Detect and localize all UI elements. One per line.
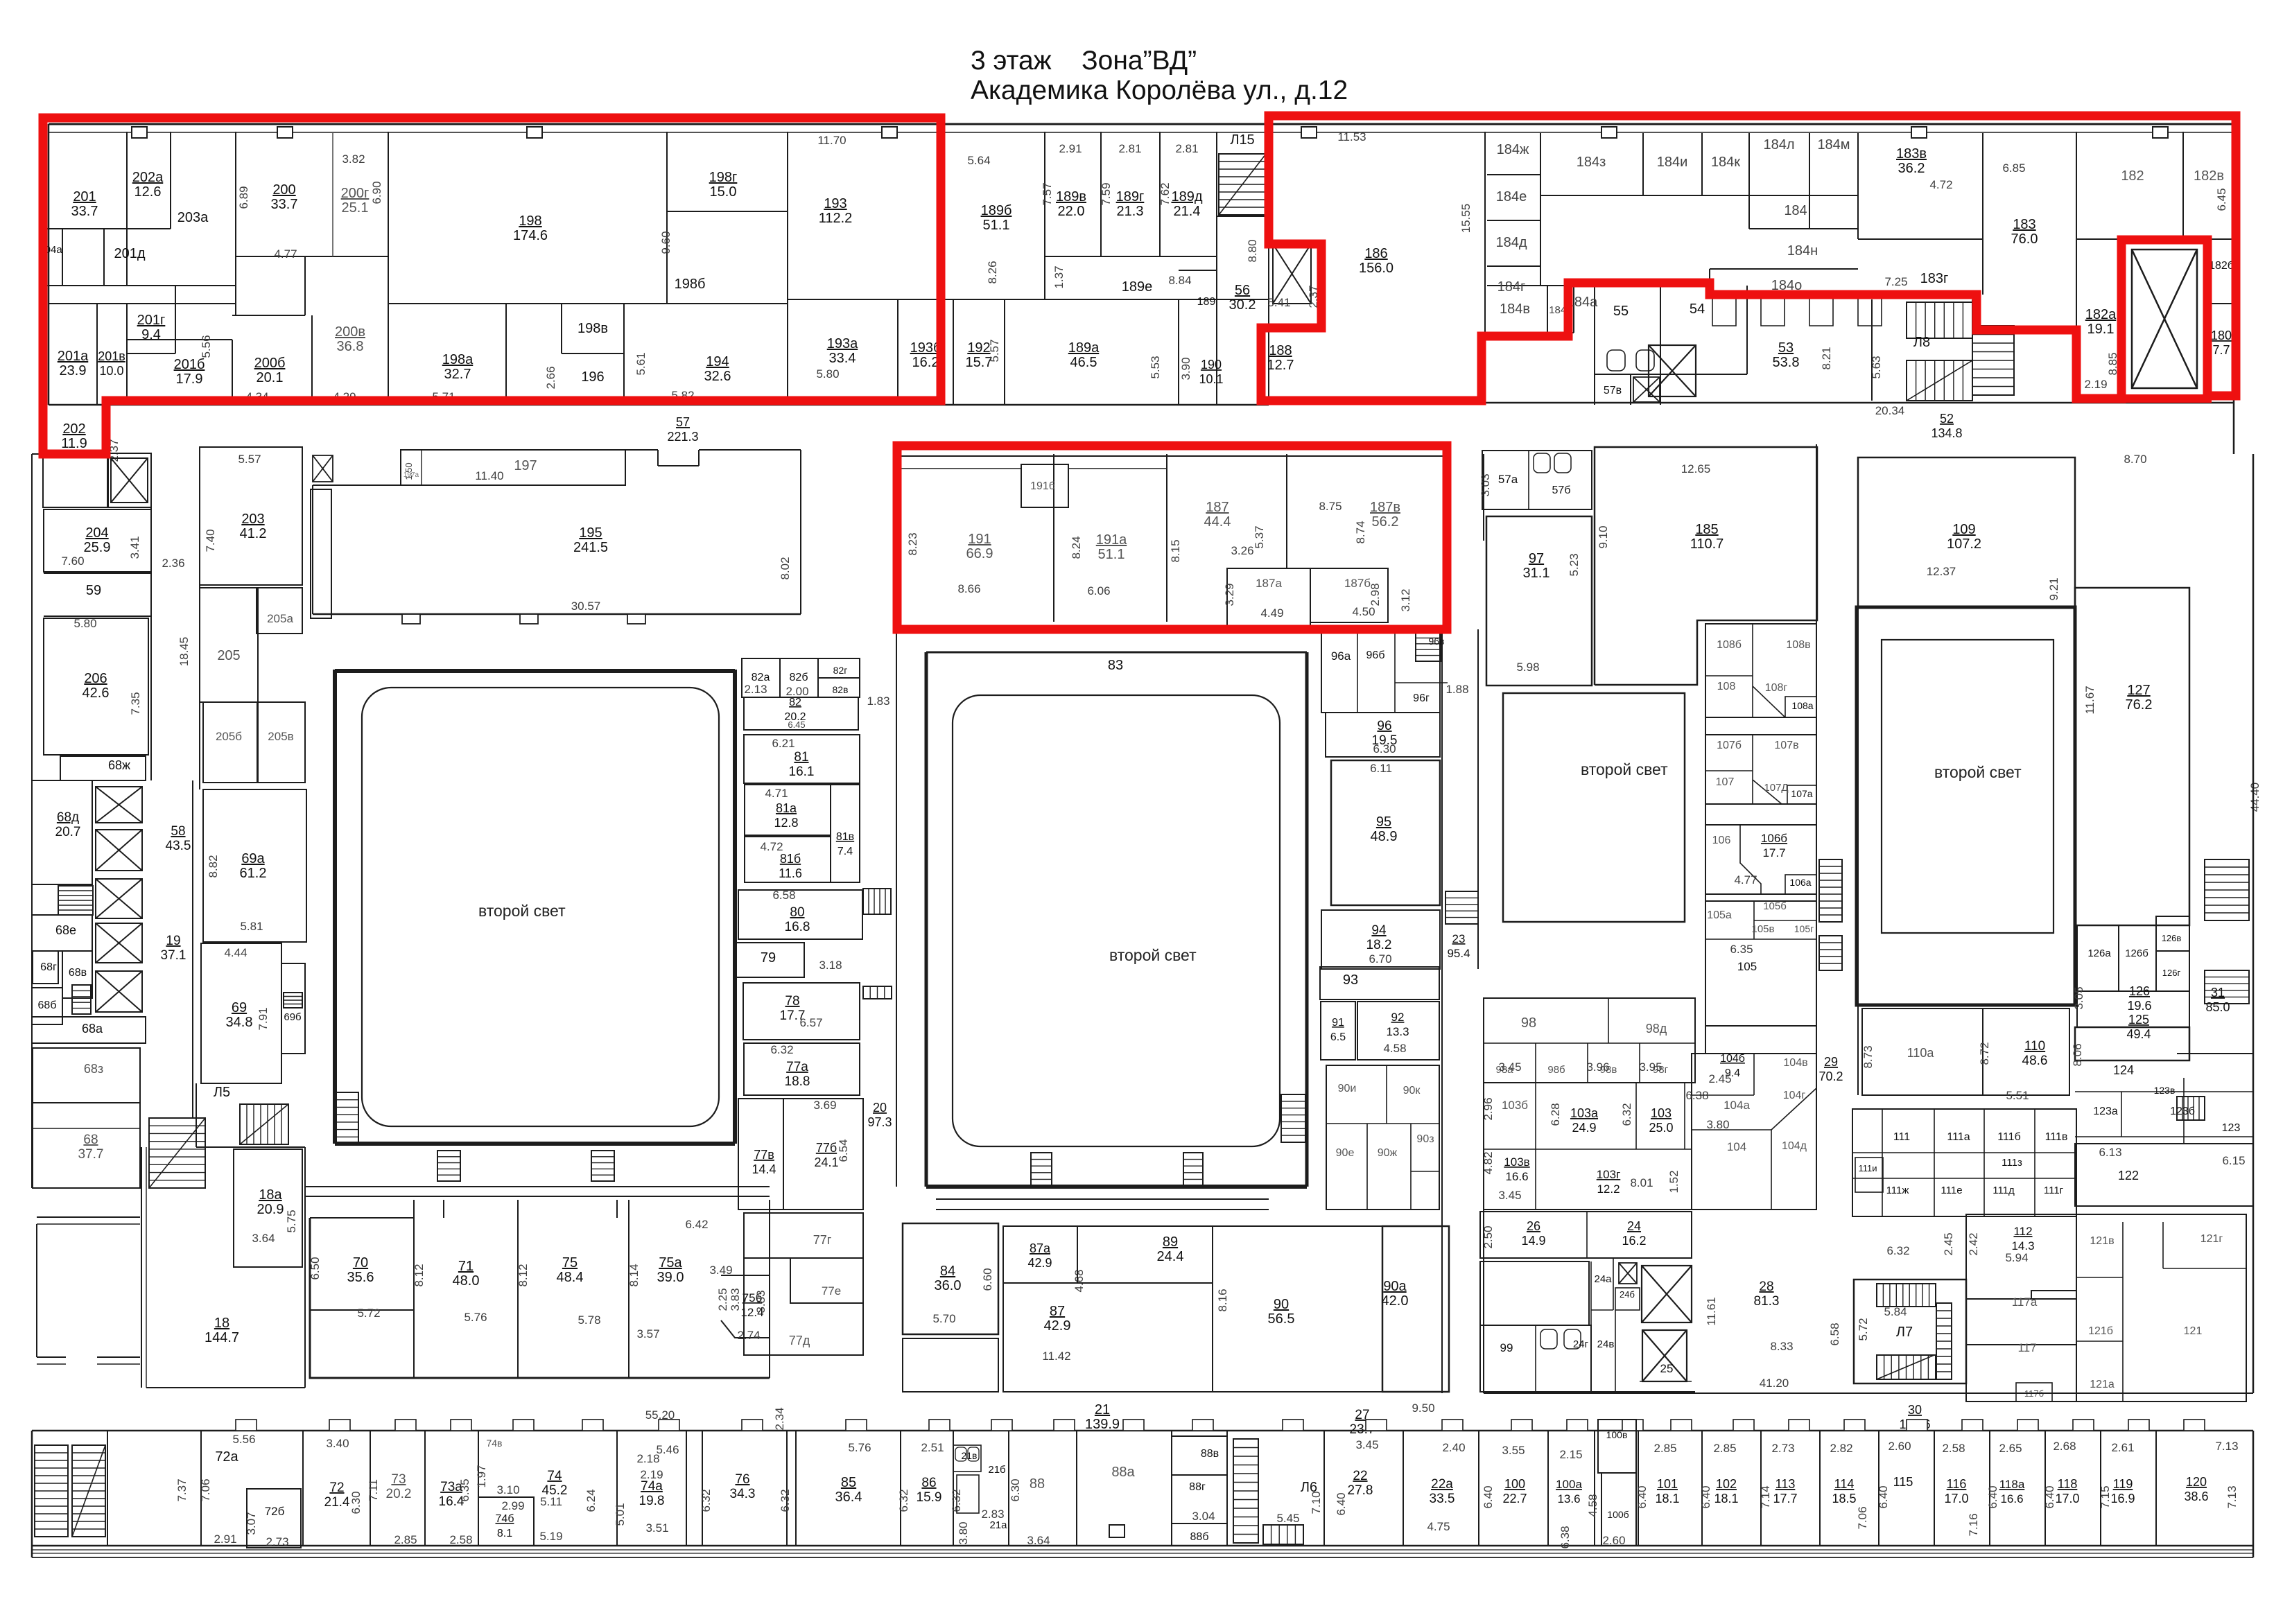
svg-text:6.50: 6.50 <box>309 1257 322 1280</box>
svg-text:182: 182 <box>2121 168 2144 184</box>
svg-text:Л15: Л15 <box>1230 132 1254 148</box>
svg-text:107: 107 <box>1716 776 1735 788</box>
svg-text:6.40: 6.40 <box>1482 1485 1495 1508</box>
svg-text:241.5: 241.5 <box>573 540 608 555</box>
svg-text:20.9: 20.9 <box>257 1202 284 1217</box>
svg-text:22.0: 22.0 <box>1058 204 1085 219</box>
svg-text:7.91: 7.91 <box>257 1007 270 1030</box>
svg-text:96а: 96а <box>1331 649 1351 663</box>
svg-text:100в: 100в <box>1606 1429 1628 1440</box>
svg-text:74в: 74в <box>486 1438 502 1449</box>
svg-text:25.0: 25.0 <box>1649 1121 1673 1135</box>
svg-text:84: 84 <box>940 1264 955 1279</box>
svg-text:2.68: 2.68 <box>2053 1440 2076 1453</box>
svg-text:117а: 117а <box>2012 1295 2038 1309</box>
svg-text:30: 30 <box>1908 1403 1922 1417</box>
svg-text:184: 184 <box>1784 203 1807 218</box>
svg-text:111г: 111г <box>2044 1185 2064 1196</box>
svg-text:17.9: 17.9 <box>176 372 203 387</box>
svg-text:4.49: 4.49 <box>1260 606 1283 620</box>
svg-text:3.07: 3.07 <box>245 1512 258 1535</box>
svg-text:2.81: 2.81 <box>1175 142 1198 155</box>
svg-text:2.61: 2.61 <box>2111 1441 2134 1454</box>
svg-text:6.40: 6.40 <box>2043 1485 2056 1508</box>
svg-text:18: 18 <box>214 1316 229 1331</box>
svg-text:6.90: 6.90 <box>370 181 383 204</box>
svg-text:44.40: 44.40 <box>2248 783 2261 812</box>
svg-text:121: 121 <box>2184 1325 2203 1337</box>
svg-text:80: 80 <box>790 905 804 920</box>
svg-text:119: 119 <box>2113 1477 2133 1491</box>
svg-text:2.85: 2.85 <box>394 1533 417 1546</box>
svg-text:5.98: 5.98 <box>1516 661 1539 674</box>
svg-text:183: 183 <box>2013 217 2035 232</box>
svg-text:77а: 77а <box>786 1060 808 1074</box>
svg-text:28: 28 <box>1759 1280 1773 1294</box>
svg-text:2.42: 2.42 <box>1967 1232 1980 1255</box>
svg-text:39.0: 39.0 <box>657 1270 684 1285</box>
svg-text:81а: 81а <box>776 801 797 815</box>
svg-text:52: 52 <box>1940 412 1954 426</box>
svg-text:202а: 202а <box>132 170 164 185</box>
svg-text:106а: 106а <box>1789 877 1811 888</box>
svg-text:5.84: 5.84 <box>1884 1305 1907 1318</box>
svg-text:24: 24 <box>1627 1219 1641 1233</box>
svg-text:26: 26 <box>1527 1219 1540 1233</box>
svg-text:3.45: 3.45 <box>1498 1189 1521 1202</box>
svg-text:205б: 205б <box>216 730 242 743</box>
svg-text:75а: 75а <box>659 1255 682 1271</box>
svg-text:5.61: 5.61 <box>634 352 648 375</box>
svg-text:97: 97 <box>1529 551 1544 566</box>
svg-text:112: 112 <box>2013 1225 2032 1238</box>
svg-text:127: 127 <box>2127 683 2150 698</box>
svg-text:3.69: 3.69 <box>813 1099 836 1112</box>
svg-text:54: 54 <box>1690 302 1705 317</box>
svg-text:198: 198 <box>519 213 541 229</box>
svg-text:13.6: 13.6 <box>1557 1492 1580 1505</box>
svg-text:33.5: 33.5 <box>1430 1492 1455 1506</box>
svg-text:2.98: 2.98 <box>1369 583 1382 606</box>
svg-text:48.9: 48.9 <box>1371 829 1398 844</box>
svg-text:3.12: 3.12 <box>1399 588 1412 611</box>
svg-text:74а: 74а <box>641 1479 663 1494</box>
svg-text:42.6: 42.6 <box>83 686 110 701</box>
svg-text:33.7: 33.7 <box>71 204 98 219</box>
svg-text:201в: 201в <box>98 349 125 363</box>
svg-text:121в: 121в <box>2090 1235 2114 1247</box>
svg-text:6.45: 6.45 <box>2215 188 2228 211</box>
svg-text:12.8: 12.8 <box>774 816 798 830</box>
svg-text:90и: 90и <box>1338 1083 1357 1094</box>
svg-text:111д: 111д <box>1993 1185 2015 1196</box>
svg-text:14.9: 14.9 <box>1521 1234 1545 1248</box>
svg-text:5.41: 5.41 <box>1267 296 1290 309</box>
svg-text:115: 115 <box>1893 1475 1913 1489</box>
svg-text:98б: 98б <box>1547 1064 1565 1076</box>
svg-text:198б: 198б <box>675 277 706 292</box>
svg-text:77б: 77б <box>816 1141 837 1155</box>
svg-text:6.45: 6.45 <box>788 719 805 730</box>
svg-text:42.9: 42.9 <box>1027 1256 1052 1270</box>
svg-text:104: 104 <box>1727 1140 1746 1153</box>
svg-text:91: 91 <box>1332 1017 1344 1029</box>
svg-text:57в: 57в <box>1604 385 1622 396</box>
svg-text:99: 99 <box>1500 1341 1513 1354</box>
svg-text:83: 83 <box>1108 658 1123 673</box>
svg-text:11.42: 11.42 <box>1042 1350 1070 1363</box>
svg-text:17.7: 17.7 <box>1762 846 1785 859</box>
svg-text:24в: 24в <box>1597 1338 1615 1350</box>
svg-text:24.9: 24.9 <box>1572 1121 1596 1135</box>
svg-text:201д: 201д <box>114 246 145 261</box>
svg-text:180: 180 <box>2211 329 2232 342</box>
svg-text:187а: 187а <box>1256 577 1282 590</box>
svg-text:77е: 77е <box>822 1284 841 1298</box>
svg-text:11.61: 11.61 <box>1705 1297 1718 1325</box>
svg-text:6.58: 6.58 <box>1828 1322 1841 1345</box>
svg-text:189а: 189а <box>1068 340 1100 356</box>
svg-text:11.67: 11.67 <box>2083 686 2096 714</box>
svg-text:193: 193 <box>824 196 847 211</box>
svg-text:73: 73 <box>391 1472 406 1487</box>
svg-text:3.96: 3.96 <box>1586 1060 1609 1074</box>
svg-text:8.14: 8.14 <box>627 1264 641 1286</box>
svg-text:70.2: 70.2 <box>1818 1069 1843 1083</box>
svg-text:6.21: 6.21 <box>772 737 795 750</box>
svg-text:201а: 201а <box>58 349 89 364</box>
svg-text:2.36: 2.36 <box>162 557 184 570</box>
svg-text:5.76: 5.76 <box>464 1311 487 1324</box>
svg-text:5.51: 5.51 <box>2006 1089 2029 1102</box>
svg-text:68: 68 <box>83 1133 98 1147</box>
svg-text:18.8: 18.8 <box>785 1074 810 1089</box>
svg-text:184г: 184г <box>1497 279 1526 295</box>
svg-text:75: 75 <box>562 1255 578 1271</box>
svg-text:5.72: 5.72 <box>1857 1318 1870 1341</box>
svg-text:20.2: 20.2 <box>386 1487 412 1501</box>
svg-text:7.06: 7.06 <box>1856 1506 1869 1529</box>
svg-text:90к: 90к <box>1403 1085 1421 1097</box>
svg-text:8.33: 8.33 <box>1770 1340 1793 1353</box>
svg-text:4.75: 4.75 <box>1427 1520 1450 1533</box>
svg-text:12.2: 12.2 <box>1597 1182 1620 1196</box>
svg-text:5.23: 5.23 <box>1568 553 1581 576</box>
svg-text:2.58: 2.58 <box>449 1533 472 1546</box>
svg-text:2.82: 2.82 <box>1830 1442 1852 1455</box>
svg-text:30.2: 30.2 <box>1229 297 1256 313</box>
svg-text:189е: 189е <box>1122 279 1153 295</box>
svg-text:88а: 88а <box>1111 1465 1135 1480</box>
svg-text:59: 59 <box>86 583 101 598</box>
svg-text:42.9: 42.9 <box>1044 1318 1071 1334</box>
svg-text:4.77: 4.77 <box>274 247 297 261</box>
svg-text:18.1: 18.1 <box>1655 1492 1679 1505</box>
svg-text:6.35: 6.35 <box>458 1478 471 1501</box>
svg-text:7.37: 7.37 <box>175 1478 189 1501</box>
svg-text:90а: 90а <box>1383 1279 1407 1294</box>
svg-text:6.11: 6.11 <box>1370 762 1392 775</box>
svg-text:7.40: 7.40 <box>204 529 217 552</box>
svg-text:202: 202 <box>62 421 85 437</box>
svg-text:116: 116 <box>1947 1477 1967 1491</box>
svg-text:57б: 57б <box>1552 484 1571 496</box>
svg-text:201: 201 <box>73 189 96 204</box>
svg-text:3.57: 3.57 <box>636 1327 659 1341</box>
svg-text:8.01: 8.01 <box>1630 1176 1653 1189</box>
svg-text:66.9: 66.9 <box>966 546 993 561</box>
svg-text:9.60: 9.60 <box>659 231 672 254</box>
svg-text:112.2: 112.2 <box>819 211 853 226</box>
svg-text:18.45: 18.45 <box>177 637 191 667</box>
svg-text:184д: 184д <box>1495 235 1527 250</box>
svg-text:11.6: 11.6 <box>779 866 802 880</box>
svg-text:2.91: 2.91 <box>1059 142 1082 155</box>
svg-text:72: 72 <box>329 1481 344 1495</box>
svg-text:88в: 88в <box>1201 1448 1219 1460</box>
svg-text:56.5: 56.5 <box>1268 1311 1295 1327</box>
svg-text:21: 21 <box>1095 1402 1110 1417</box>
svg-text:6.42: 6.42 <box>685 1218 708 1231</box>
svg-text:8.24: 8.24 <box>1070 536 1083 559</box>
svg-text:68е: 68е <box>55 923 76 937</box>
svg-text:126б: 126б <box>2125 948 2148 959</box>
svg-text:203а: 203а <box>177 210 209 225</box>
svg-text:92: 92 <box>1391 1011 1405 1024</box>
svg-text:87а: 87а <box>1030 1241 1051 1255</box>
svg-text:30.57: 30.57 <box>571 600 601 613</box>
svg-text:12.7: 12.7 <box>1267 358 1294 373</box>
svg-text:134.8: 134.8 <box>1931 426 1962 440</box>
svg-text:126: 126 <box>2129 984 2150 998</box>
svg-text:7.35: 7.35 <box>129 692 142 715</box>
svg-text:6.32: 6.32 <box>700 1489 713 1512</box>
svg-text:106: 106 <box>1712 835 1731 846</box>
svg-text:2.58: 2.58 <box>1942 1442 1965 1455</box>
svg-text:7.16: 7.16 <box>1967 1513 1980 1536</box>
svg-text:25.9: 25.9 <box>84 540 111 555</box>
svg-text:2.73: 2.73 <box>1771 1442 1794 1455</box>
svg-text:94: 94 <box>1371 923 1387 938</box>
svg-text:5.70: 5.70 <box>932 1312 955 1325</box>
svg-text:87: 87 <box>1050 1304 1065 1319</box>
svg-text:1.52: 1.52 <box>1667 1170 1681 1193</box>
svg-text:7.13: 7.13 <box>2225 1485 2239 1508</box>
svg-text:3.04: 3.04 <box>1192 1510 1215 1523</box>
svg-text:23.9: 23.9 <box>60 363 87 378</box>
svg-text:12.37: 12.37 <box>1927 565 1956 578</box>
svg-text:8.15: 8.15 <box>1169 539 1182 562</box>
svg-text:69б: 69б <box>284 1011 301 1023</box>
svg-text:Л8: Л8 <box>1913 335 1930 350</box>
svg-text:5.53: 5.53 <box>1149 356 1162 378</box>
svg-text:187в: 187в <box>1370 500 1400 515</box>
svg-text:6.57: 6.57 <box>799 1016 822 1029</box>
svg-text:98: 98 <box>1521 1015 1536 1031</box>
svg-text:77г: 77г <box>813 1233 832 1247</box>
svg-text:121г: 121г <box>2200 1233 2223 1245</box>
svg-text:103г: 103г <box>1597 1168 1621 1181</box>
svg-text:96г: 96г <box>1413 692 1430 704</box>
svg-text:6.60: 6.60 <box>981 1268 994 1291</box>
svg-text:95.4: 95.4 <box>1447 947 1470 960</box>
svg-text:117: 117 <box>2017 1341 2036 1354</box>
svg-text:183в: 183в <box>1896 146 1927 161</box>
svg-text:7.60: 7.60 <box>61 555 84 568</box>
svg-text:189д: 189д <box>1171 189 1202 204</box>
svg-text:68в: 68в <box>69 967 87 979</box>
svg-text:2.15: 2.15 <box>1559 1448 1582 1461</box>
svg-text:27.8: 27.8 <box>1348 1483 1373 1498</box>
svg-text:107Д: 107Д <box>1764 782 1788 794</box>
svg-text:182б: 182б <box>2209 260 2234 272</box>
svg-text:57а: 57а <box>1498 473 1518 486</box>
svg-text:4.50: 4.50 <box>1352 605 1375 618</box>
svg-text:16.9: 16.9 <box>2110 1492 2135 1505</box>
svg-text:123в: 123в <box>2154 1085 2176 1096</box>
svg-text:104в: 104в <box>1783 1057 1807 1069</box>
svg-text:3.80: 3.80 <box>957 1521 970 1544</box>
svg-text:2.60: 2.60 <box>1602 1534 1625 1547</box>
svg-text:8.21: 8.21 <box>1820 347 1833 369</box>
svg-text:3.64: 3.64 <box>252 1232 275 1245</box>
svg-text:72б: 72б <box>265 1505 285 1518</box>
svg-text:124: 124 <box>2113 1063 2134 1077</box>
svg-text:24б: 24б <box>1620 1289 1635 1300</box>
svg-text:7.14: 7.14 <box>1759 1485 1772 1508</box>
svg-text:18.1: 18.1 <box>1714 1492 1738 1505</box>
svg-text:1.88: 1.88 <box>1445 683 1468 696</box>
svg-text:5.11: 5.11 <box>540 1495 562 1508</box>
svg-text:20.34: 20.34 <box>1875 404 1905 417</box>
svg-text:18.2: 18.2 <box>1366 938 1392 952</box>
svg-text:11.9: 11.9 <box>61 436 87 451</box>
svg-text:6.38: 6.38 <box>1685 1089 1708 1102</box>
svg-text:198в: 198в <box>578 321 608 336</box>
svg-text:36.0: 36.0 <box>935 1278 962 1293</box>
svg-text:7.59: 7.59 <box>1100 182 1113 205</box>
svg-text:5.57: 5.57 <box>988 339 1001 362</box>
svg-text:48.4: 48.4 <box>557 1270 584 1285</box>
svg-text:6.30: 6.30 <box>1009 1478 1022 1501</box>
svg-text:95: 95 <box>1376 814 1391 830</box>
svg-text:6.32: 6.32 <box>1886 1244 1909 1257</box>
svg-text:21.4: 21.4 <box>1174 204 1201 219</box>
svg-text:20: 20 <box>873 1101 887 1115</box>
svg-text:205а: 205а <box>267 612 293 625</box>
svg-text:7.7: 7.7 <box>2212 343 2230 357</box>
svg-text:4.71: 4.71 <box>765 787 788 800</box>
svg-text:48.0: 48.0 <box>453 1273 480 1289</box>
svg-text:139.9: 139.9 <box>1085 1417 1120 1432</box>
svg-text:187: 187 <box>1206 500 1229 515</box>
svg-text:5.63: 5.63 <box>1870 356 1883 378</box>
svg-text:88г: 88г <box>1189 1481 1206 1493</box>
svg-text:108г: 108г <box>1765 682 1788 694</box>
svg-text:126а: 126а <box>2087 948 2111 959</box>
svg-text:2.19: 2.19 <box>640 1468 663 1481</box>
svg-text:100а: 100а <box>1556 1478 1582 1491</box>
svg-text:2.25: 2.25 <box>716 1288 729 1311</box>
svg-text:144.7: 144.7 <box>205 1330 239 1345</box>
svg-text:3.55: 3.55 <box>1502 1444 1525 1457</box>
svg-text:123а: 123а <box>2093 1106 2118 1117</box>
svg-text:70: 70 <box>353 1255 368 1271</box>
svg-text:57: 57 <box>676 415 690 429</box>
svg-text:6.54: 6.54 <box>837 1139 850 1162</box>
svg-text:19.6: 19.6 <box>2127 999 2151 1013</box>
svg-text:8.72: 8.72 <box>1978 1042 1991 1065</box>
svg-text:103а: 103а <box>1570 1106 1599 1120</box>
svg-text:100б: 100б <box>1607 1509 1629 1520</box>
svg-text:2.74: 2.74 <box>737 1329 760 1342</box>
svg-text:184м: 184м <box>1817 137 1850 152</box>
svg-text:3.05: 3.05 <box>2072 986 2085 1009</box>
svg-text:6.32: 6.32 <box>897 1489 910 1512</box>
svg-text:8.84: 8.84 <box>1168 274 1191 287</box>
svg-text:76.2: 76.2 <box>2126 697 2153 713</box>
svg-text:81.3: 81.3 <box>1754 1294 1780 1309</box>
svg-text:2.73: 2.73 <box>266 1535 288 1548</box>
svg-text:3.51: 3.51 <box>645 1521 668 1535</box>
svg-text:184н: 184н <box>1787 243 1818 259</box>
svg-text:103в: 103в <box>1504 1155 1529 1169</box>
svg-text:104д: 104д <box>1782 1140 1807 1152</box>
svg-text:193а: 193а <box>827 336 858 351</box>
svg-text:8.80: 8.80 <box>1246 239 1259 262</box>
svg-text:34.8: 34.8 <box>226 1015 253 1030</box>
svg-text:113: 113 <box>1776 1477 1796 1491</box>
svg-text:22.7: 22.7 <box>1502 1492 1527 1505</box>
svg-text:2.45: 2.45 <box>1942 1232 1955 1255</box>
svg-text:8.06: 8.06 <box>2071 1043 2084 1066</box>
svg-text:16.1: 16.1 <box>789 765 815 779</box>
svg-text:121б: 121б <box>2088 1325 2113 1337</box>
svg-text:5.80: 5.80 <box>73 617 96 630</box>
svg-text:68ж: 68ж <box>108 758 130 772</box>
svg-text:123: 123 <box>2222 1122 2241 1134</box>
svg-text:110.7: 110.7 <box>1690 536 1724 552</box>
svg-text:3.95: 3.95 <box>1639 1060 1662 1074</box>
svg-text:16.2: 16.2 <box>1622 1234 1646 1248</box>
svg-text:3.41: 3.41 <box>128 536 141 559</box>
svg-text:18а: 18а <box>259 1187 282 1203</box>
svg-text:81б: 81б <box>780 852 801 866</box>
svg-text:204: 204 <box>85 525 108 541</box>
svg-text:12.65: 12.65 <box>1681 462 1711 475</box>
svg-text:8.74: 8.74 <box>1354 521 1367 543</box>
svg-text:42.0: 42.0 <box>1382 1293 1409 1309</box>
svg-text:10.1: 10.1 <box>1199 372 1223 386</box>
svg-text:190: 190 <box>1201 358 1222 372</box>
svg-text:4.72: 4.72 <box>1929 178 1952 191</box>
svg-text:31.1: 31.1 <box>1523 566 1550 581</box>
svg-text:156.0: 156.0 <box>1359 261 1394 276</box>
svg-text:6.35: 6.35 <box>1730 943 1753 956</box>
svg-text:6.89: 6.89 <box>237 186 250 209</box>
svg-text:205: 205 <box>217 648 240 663</box>
svg-text:6.30: 6.30 <box>1373 742 1396 756</box>
svg-text:5.76: 5.76 <box>848 1441 871 1454</box>
svg-text:24а: 24а <box>1594 1273 1612 1285</box>
svg-text:9.4: 9.4 <box>141 327 161 342</box>
svg-text:5.01: 5.01 <box>614 1503 627 1526</box>
svg-text:18.5: 18.5 <box>1832 1492 1856 1505</box>
svg-text:2.85: 2.85 <box>1653 1442 1676 1455</box>
svg-text:122: 122 <box>2118 1169 2139 1182</box>
svg-text:8.12: 8.12 <box>413 1264 426 1286</box>
svg-text:7.62: 7.62 <box>1158 182 1172 205</box>
